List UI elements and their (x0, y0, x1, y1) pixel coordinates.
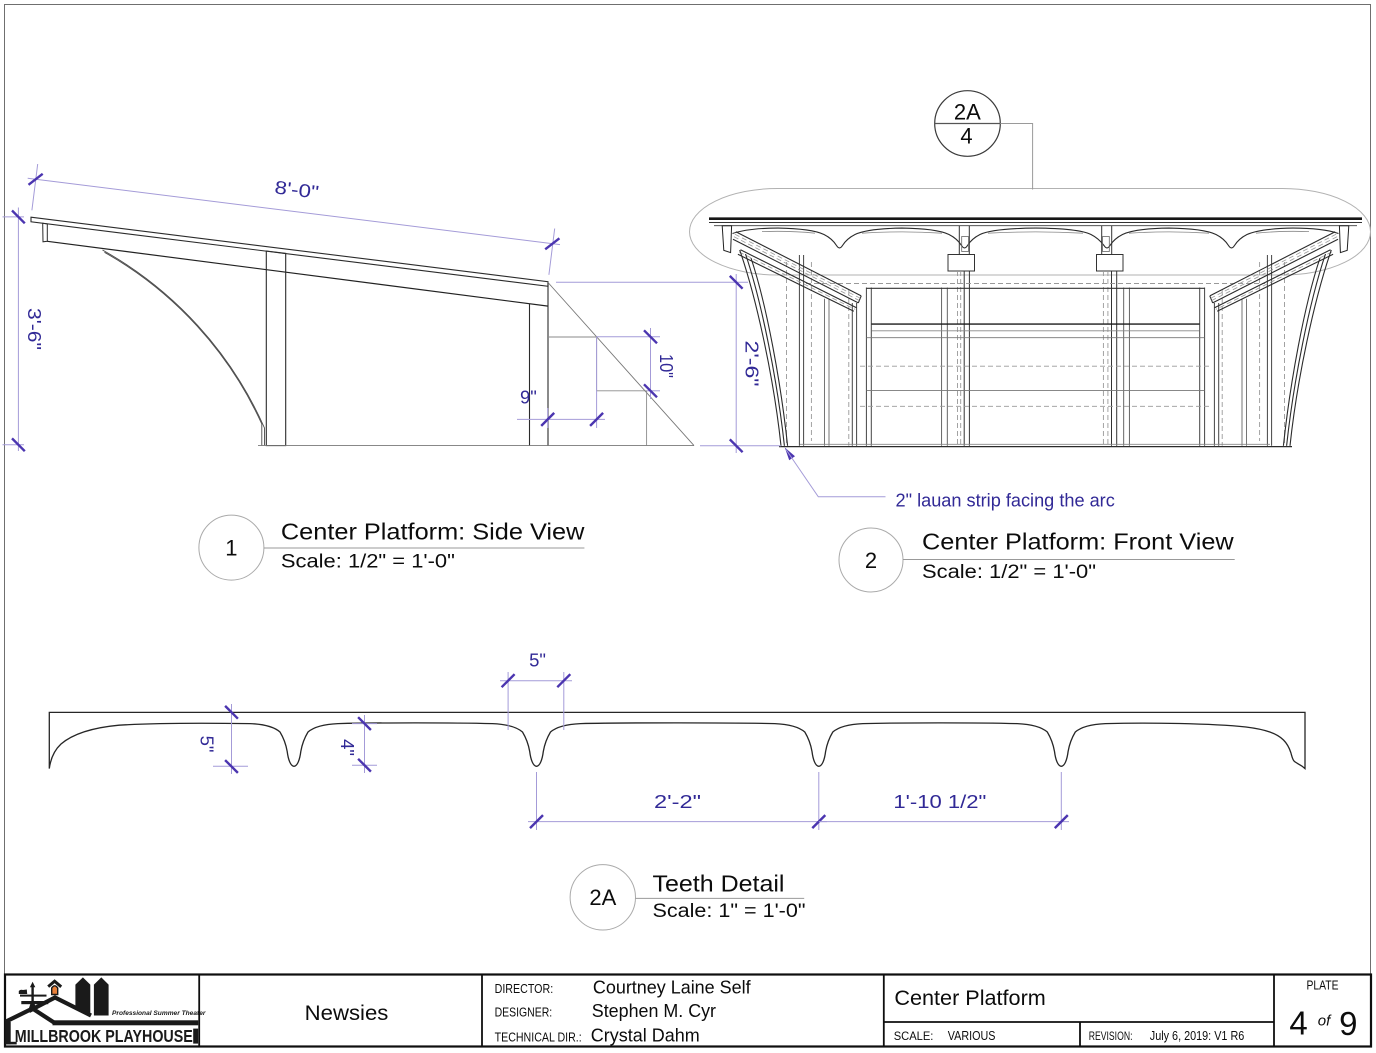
svg-text:Scale: 1/2" = 1'-0": Scale: 1/2" = 1'-0" (922, 562, 1096, 583)
svg-text:2A: 2A (589, 885, 616, 910)
svg-text:2A: 2A (954, 99, 981, 124)
svg-text:3'-6": 3'-6" (24, 308, 45, 350)
svg-text:1'-10 1/2": 1'-10 1/2" (893, 791, 986, 812)
svg-text:Teeth Detail: Teeth Detail (653, 871, 785, 897)
svg-text:Stephen M. Cyr: Stephen M. Cyr (592, 1000, 716, 1021)
svg-text:2'-2": 2'-2" (654, 791, 701, 812)
svg-text:Crystal Dahm: Crystal Dahm (591, 1025, 700, 1046)
svg-text:Professional Summer Theater: Professional Summer Theater (112, 1010, 206, 1017)
svg-text:July 6, 2019: V1 R6: July 6, 2019: V1 R6 (1150, 1029, 1245, 1043)
svg-text:4: 4 (1289, 1004, 1307, 1041)
svg-text:DESIGNER:: DESIGNER: (495, 1006, 553, 1020)
svg-text:TECHNICAL DIR.:: TECHNICAL DIR.: (495, 1030, 582, 1044)
svg-text:2" lauan strip facing the arc: 2" lauan strip facing the arc (896, 490, 1115, 511)
svg-text:5": 5" (529, 650, 546, 671)
svg-text:PLATE: PLATE (1307, 978, 1339, 993)
svg-text:DIRECTOR:: DIRECTOR: (495, 982, 554, 996)
svg-text:SCALE:: SCALE: (894, 1029, 934, 1043)
svg-text:REVISION:: REVISION: (1089, 1029, 1133, 1043)
svg-text:Center Platform: Center Platform (894, 987, 1045, 1010)
svg-text:9: 9 (1339, 1005, 1357, 1042)
svg-text:4: 4 (960, 124, 972, 149)
svg-text:of: of (1318, 1013, 1332, 1030)
svg-text:9": 9" (520, 387, 537, 408)
svg-text:Courtney Laine Self: Courtney Laine Self (593, 977, 752, 998)
svg-text:MILLBROOK PLAYHOUSE: MILLBROOK PLAYHOUSE (15, 1026, 193, 1046)
svg-text:Center Platform: Side View: Center Platform: Side View (281, 519, 585, 545)
svg-text:Newsies: Newsies (305, 1002, 389, 1025)
svg-text:4": 4" (337, 739, 358, 756)
svg-text:2'-6": 2'-6" (741, 341, 762, 387)
svg-text:VARIOUS: VARIOUS (948, 1029, 996, 1043)
svg-text:10": 10" (656, 354, 677, 378)
svg-text:Scale: 1/2" = 1'-0": Scale: 1/2" = 1'-0" (281, 551, 455, 572)
svg-text:1: 1 (225, 536, 237, 561)
svg-text:5": 5" (197, 736, 218, 753)
svg-text:Center Platform: Front View: Center Platform: Front View (922, 529, 1234, 555)
svg-text:Scale: 1" = 1'-0": Scale: 1" = 1'-0" (653, 901, 806, 922)
svg-text:2: 2 (865, 548, 877, 573)
